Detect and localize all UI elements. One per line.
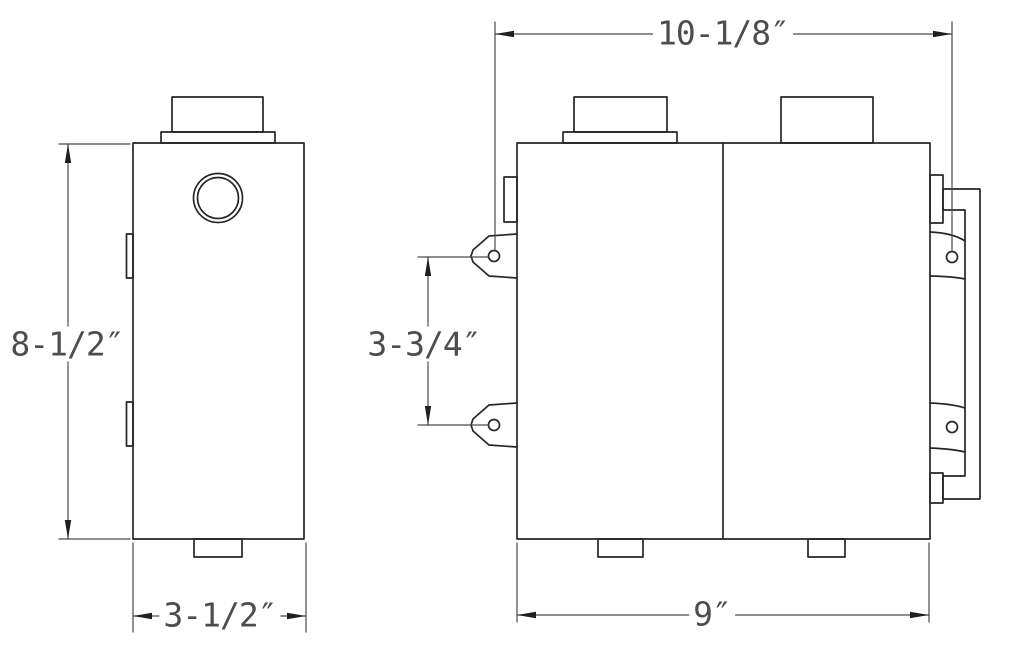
arrowhead-up-icon <box>65 144 71 163</box>
side-view-edge-boss-top <box>127 234 134 278</box>
side-view-port-inner-circle <box>198 178 239 219</box>
arrowhead-left-icon <box>517 612 536 618</box>
side-view-edge-boss-bottom <box>127 402 134 446</box>
side-view-body <box>133 143 304 539</box>
arrowhead-down-icon <box>65 520 71 539</box>
arrowhead-right-icon <box>287 613 306 619</box>
mounting-tab-lower-right-bottom-edge <box>930 448 965 452</box>
right-edge-boss-top <box>930 175 943 223</box>
side-view-cap-top <box>172 97 263 132</box>
mounting-hole-lower-left <box>489 420 500 431</box>
arrowhead-up-icon <box>425 257 431 276</box>
side-view-cap-flange <box>161 132 275 143</box>
mounting-tab-upper-right-bottom-edge <box>930 276 965 279</box>
right-edge-boss-bottom <box>930 473 943 503</box>
side-view-bottom-tab <box>194 539 242 557</box>
dimension-annotations <box>59 22 952 632</box>
mounting-hole-upper-left <box>489 251 500 262</box>
arrowhead-down-icon <box>425 406 431 425</box>
side-view <box>127 97 305 557</box>
front-view-bottom-tab-left <box>598 539 643 557</box>
mounting-hole-upper-right <box>947 252 958 263</box>
mounting-tab-upper-right-top-edge <box>930 232 965 241</box>
mounting-hole-lower-right <box>947 422 958 433</box>
dim-side-width-label: 3-1/2″ <box>159 598 280 633</box>
dim-body-width-label: 9″ <box>689 597 735 632</box>
arrowhead-right-icon <box>933 31 952 37</box>
arrowhead-left-icon <box>495 31 514 37</box>
mounting-tab-lower-right-top-edge <box>930 403 965 408</box>
front-view <box>471 97 980 557</box>
dim-overall-width-label: 10-1/8″ <box>653 16 793 51</box>
drawing-geometry <box>0 0 1024 654</box>
front-view-right-cap <box>781 97 873 143</box>
arrowhead-right-icon <box>910 612 929 618</box>
front-view-left-cap-top <box>574 97 667 132</box>
mounting-tab-upper-left <box>471 234 517 278</box>
front-view-bottom-tab-right <box>808 539 845 557</box>
arrowhead-left-icon <box>133 613 152 619</box>
dim-height-label: 8-1/2″ <box>6 327 127 362</box>
front-view-left-cap-flange <box>563 132 677 143</box>
cad-drawing-canvas: 10-1/8″ 8-1/2″ 3-1/2″ 3-3/4″ 9″ <box>0 0 1024 654</box>
front-view-left-edge-boss <box>504 177 517 222</box>
side-view-port-outer-circle <box>194 174 243 223</box>
right-bracket-rail <box>943 189 980 499</box>
dim-hole-spacing-label: 3-3/4″ <box>363 327 484 362</box>
